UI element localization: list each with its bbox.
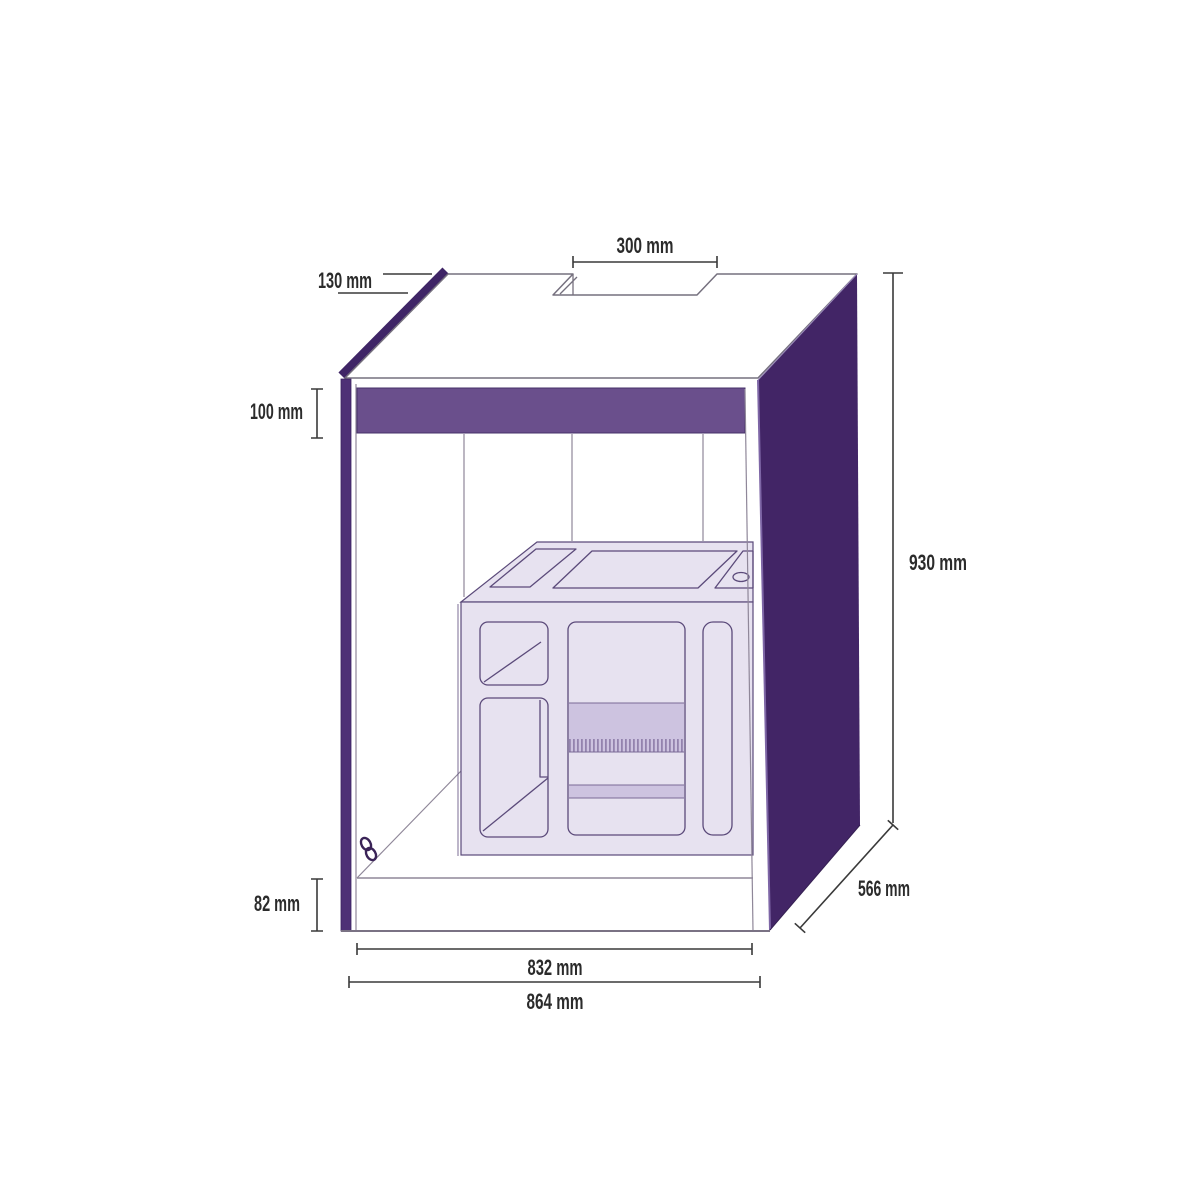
dim-label-outer-width: 864 mm bbox=[527, 989, 584, 1014]
dim-line-overall-height bbox=[883, 273, 903, 823]
water-band-lower bbox=[569, 785, 684, 798]
dim-line-inner-width bbox=[357, 943, 752, 955]
sump bbox=[458, 542, 753, 856]
diagram-svg: 300 mm 130 mm 100 mm 930 mm 566 mm 82 mm… bbox=[0, 0, 1200, 1200]
chain-link-icon bbox=[359, 836, 378, 862]
chain-knot bbox=[367, 847, 370, 850]
dim-label-cutout-depth: 130 mm bbox=[318, 268, 372, 293]
cabinet-dimension-diagram: 300 mm 130 mm 100 mm 930 mm 566 mm 82 mm… bbox=[0, 0, 1200, 1200]
dim-line-plinth-height bbox=[311, 879, 323, 931]
dim-label-top-rail-height: 100 mm bbox=[250, 399, 303, 424]
front-left-stile bbox=[341, 379, 351, 931]
dim-outer-width: 864 mm bbox=[349, 976, 760, 1014]
dim-label-inner-width: 832 mm bbox=[528, 955, 583, 980]
dim-overall-height: 930 mm bbox=[883, 273, 967, 823]
dim-label-overall-height: 930 mm bbox=[909, 550, 967, 575]
dim-line-top-rail-height bbox=[311, 389, 323, 438]
dim-label-plinth-height: 82 mm bbox=[254, 891, 300, 916]
chain-ring-bottom bbox=[364, 846, 378, 862]
floor-left-wall-junction bbox=[357, 771, 461, 878]
dim-cutout-depth: 130 mm bbox=[318, 268, 432, 293]
dim-inner-width: 832 mm bbox=[357, 943, 752, 980]
dim-label-overall-depth: 566 mm bbox=[858, 876, 910, 901]
dim-top-rail-height: 100 mm bbox=[250, 389, 323, 438]
dim-plinth-height: 82 mm bbox=[254, 879, 323, 931]
weir-comb bbox=[569, 739, 684, 752]
top-rail bbox=[357, 388, 745, 433]
dim-label-cutout-width: 300 mm bbox=[617, 233, 674, 258]
cabinet-right-side-panel bbox=[758, 274, 860, 930]
dim-cutout-width: 300 mm bbox=[573, 233, 717, 268]
